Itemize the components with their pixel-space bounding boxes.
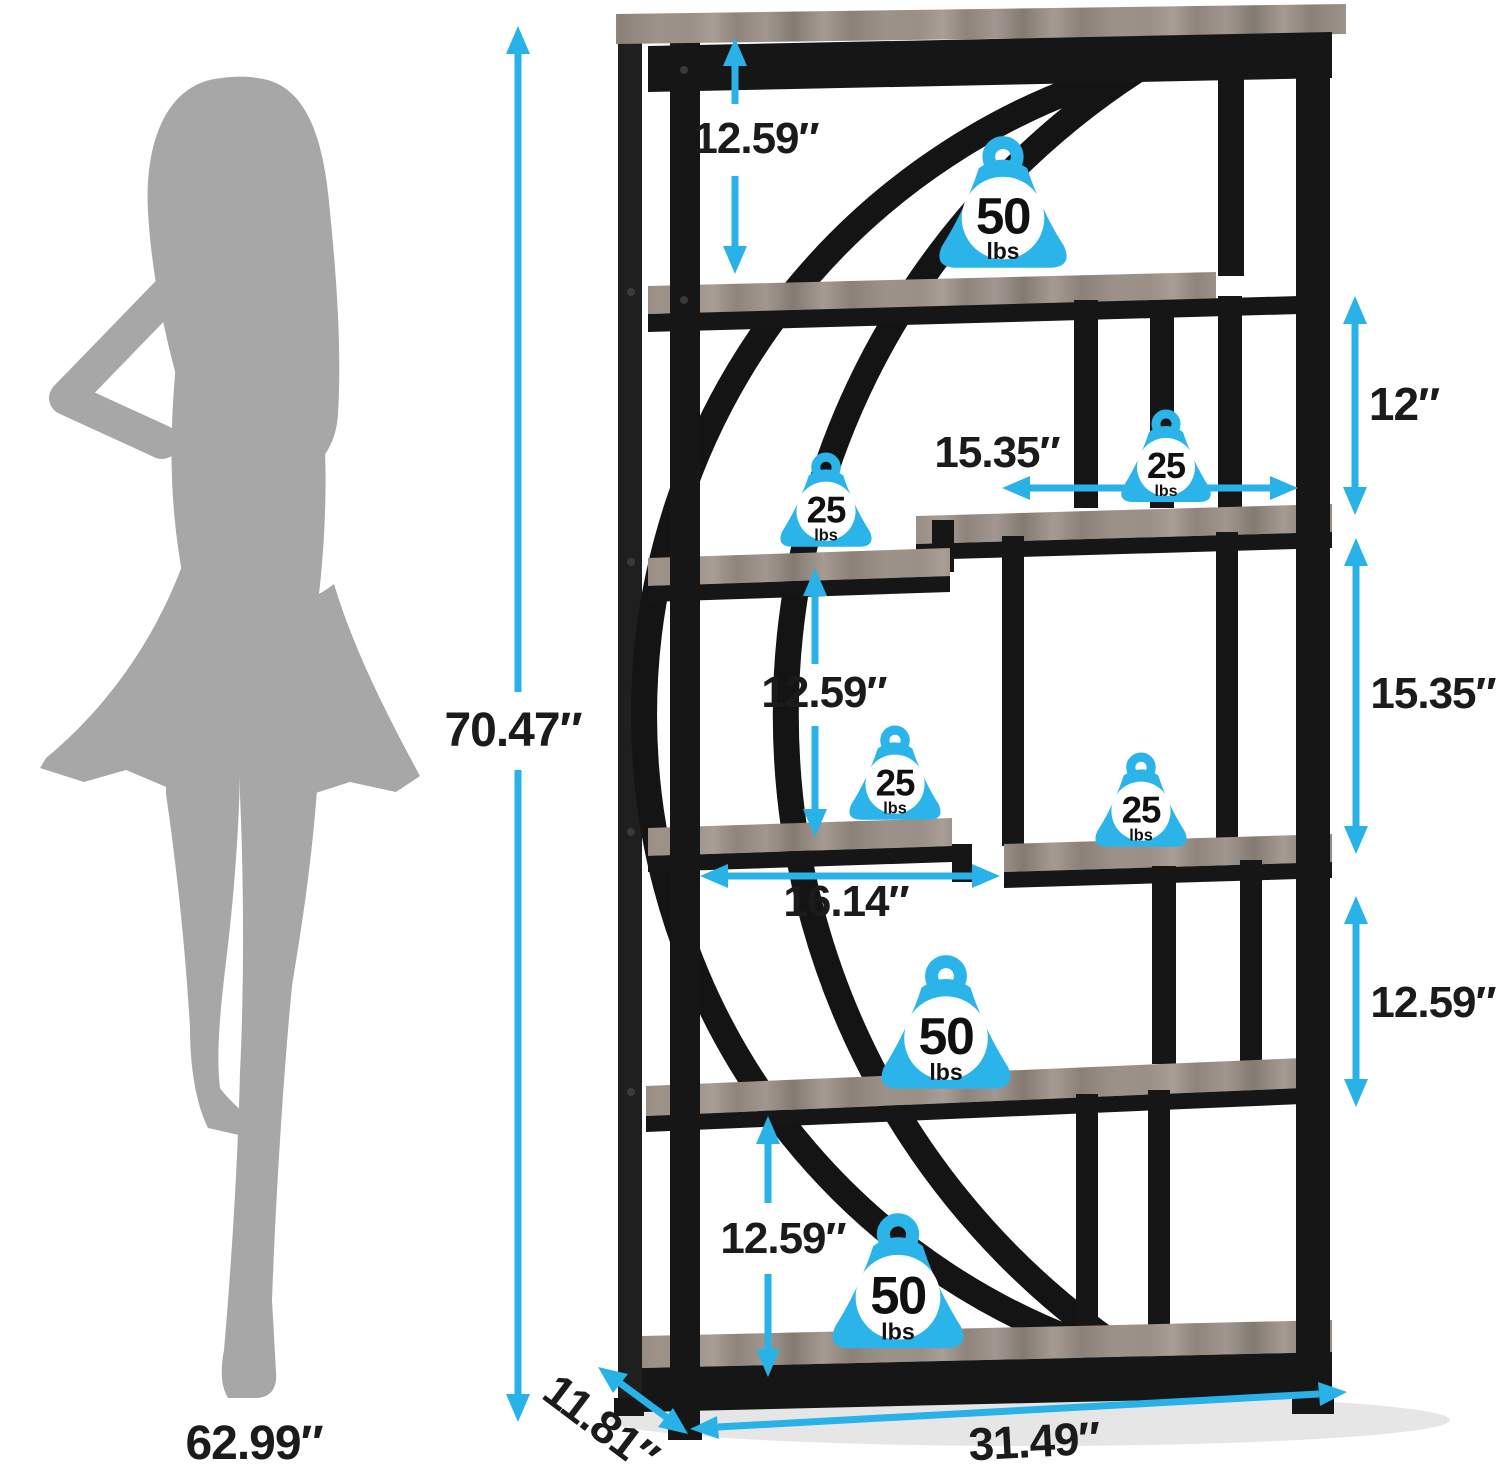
upper-right-post-b — [1150, 300, 1174, 508]
lower-right-post-b — [1148, 1090, 1170, 1328]
right-lower-gap-arrow — [1344, 896, 1368, 1107]
upper-right-post-a — [1074, 300, 1098, 508]
crescent-arc-frame — [644, 68, 1140, 1362]
woman-silhouette — [40, 77, 420, 1398]
cubby-height-arrow — [1344, 538, 1368, 854]
middle-gap-arrow — [803, 568, 827, 837]
scene-graphic — [0, 0, 1500, 1478]
product-dimension-diagram: 70.47″12.59″12″15.35″12.59″15.35″16.14″1… — [0, 0, 1500, 1478]
frame-front-left-post — [670, 40, 700, 1432]
bookshelf — [614, 4, 1346, 1440]
overall-height-arrow — [506, 26, 530, 1422]
lower-right-post-a — [1076, 1094, 1098, 1330]
upper-right-post-c — [1218, 296, 1242, 510]
cubby-right-post — [1216, 532, 1238, 838]
right-upper-gap-arrow — [1343, 296, 1367, 515]
mid-right-post-a — [1152, 866, 1176, 1064]
cubby-left-post — [1002, 536, 1024, 846]
silhouette-torso — [171, 236, 325, 622]
silhouette-front-leg — [222, 772, 318, 1398]
frame-right-post — [1296, 28, 1330, 1400]
mid-right-post-b — [1240, 860, 1262, 1064]
